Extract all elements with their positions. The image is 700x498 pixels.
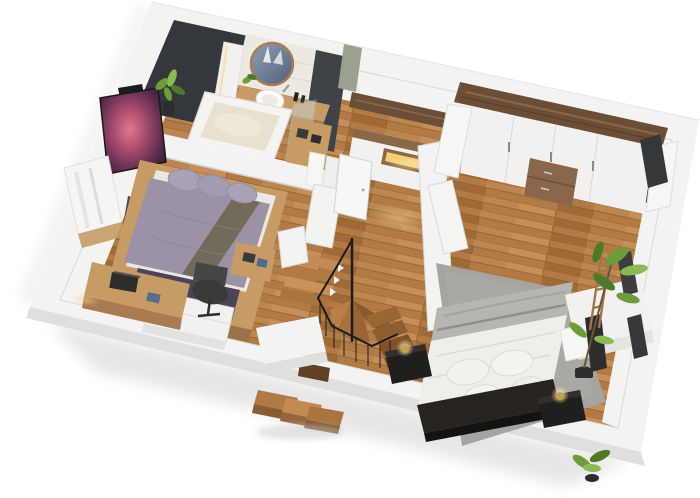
wall-tv <box>100 84 166 174</box>
tv-screen <box>100 88 166 174</box>
round-mirror <box>251 43 293 85</box>
floorplan-render <box>0 0 700 498</box>
brass-lamp <box>401 345 409 353</box>
brass-lamp <box>556 392 564 400</box>
stair-halfwall-top <box>278 226 308 268</box>
floorplan-stage <box>0 0 700 498</box>
hall-door-open <box>334 154 372 220</box>
